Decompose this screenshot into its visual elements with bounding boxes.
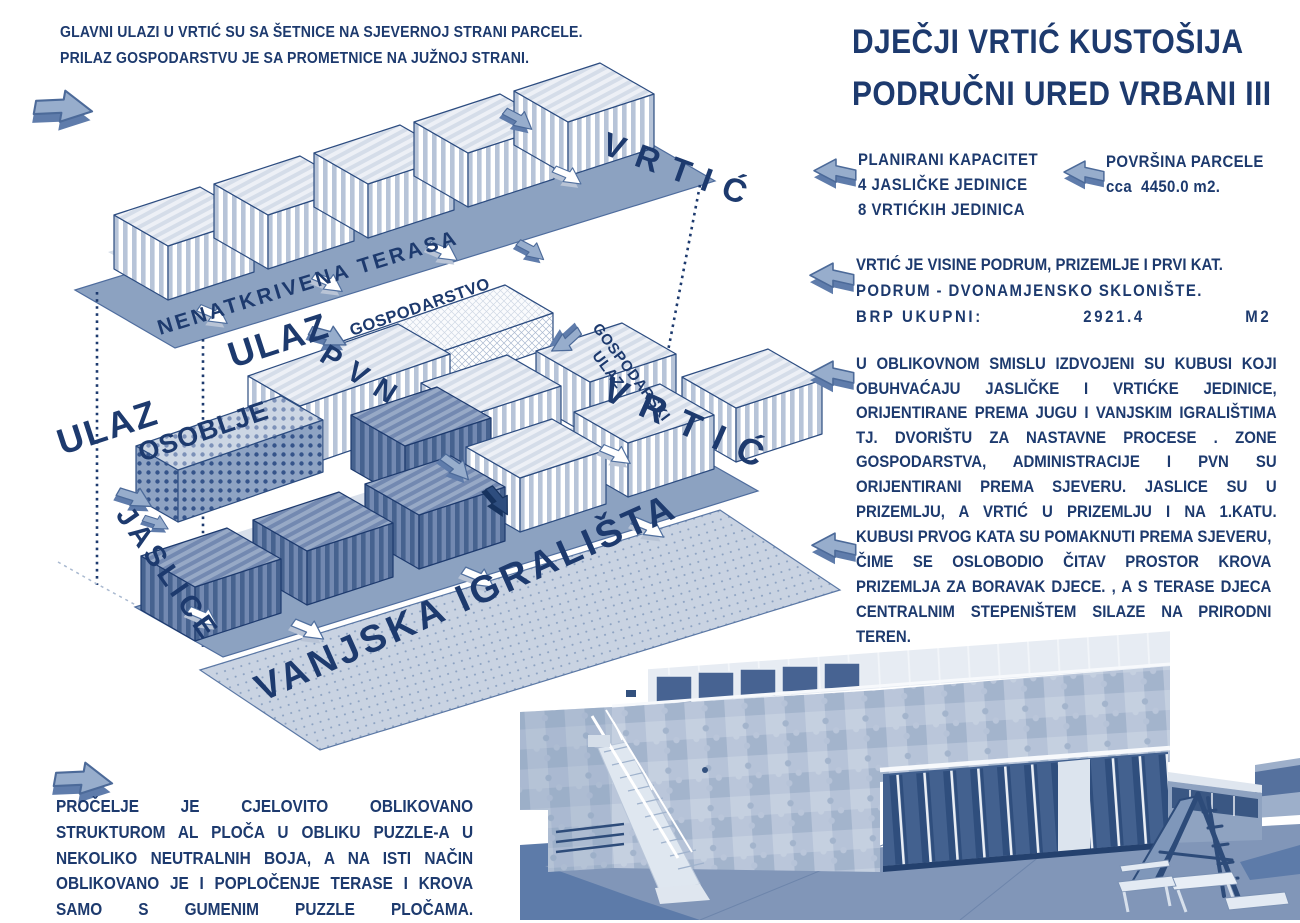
note-line: PRILAZ GOSPODARSTVU JE SA PROMETNICE NA …: [60, 46, 623, 72]
note-arrow-icon: [812, 533, 856, 564]
note-line: GLAVNI ULAZI U VRTIĆ SU SA ŠETNICE NA SJ…: [60, 20, 623, 46]
floors-line: VRTIĆ JE VISINE PODRUM, PRIZEMLJE I PRVI…: [856, 252, 1271, 278]
wall-sign: [626, 690, 636, 697]
wall-lamp: [702, 767, 708, 773]
note-facade: PROČELJE JE CJELOVITO OBLIKOVANO STRUKTU…: [56, 794, 530, 923]
first-floor-text: KUBUSI PRVOG KATA SU POMAKNUTI PREMA SJE…: [856, 524, 1271, 649]
capacity-line: PLANIRANI KAPACITET: [858, 147, 1087, 172]
title-line-1: DJEČJI VRTIĆ KUSTOŠIJA: [852, 16, 1300, 68]
building-photo: [520, 630, 1300, 920]
title-line-2: PODRUČNI URED VRBANI III: [852, 68, 1300, 120]
glazing-pier: [1058, 759, 1090, 852]
note-arrow-icon: [32, 86, 95, 136]
brp-label: BRP UKUPNI:: [856, 304, 983, 330]
note-arrow-icon: [814, 159, 856, 189]
guide-dashed-line: [58, 562, 145, 610]
note-massing: U OBLIKOVNOM SMISLU IZDVOJENI SU KUBUSI …: [856, 352, 1300, 524]
page-title: DJEČJI VRTIĆ KUSTOŠIJA PODRUČNI URED VRB…: [852, 16, 1300, 120]
massing-text: U OBLIKOVNOM SMISLU IZDVOJENI SU KUBUSI …: [856, 352, 1277, 524]
area-label: POVRŠINA PARCELE: [1106, 149, 1300, 174]
note-parcel-area: POVRŠINA PARCELE cca 4450.0 m2.: [1106, 149, 1300, 199]
note-capacity: PLANIRANI KAPACITET 4 JASLIČKE JEDINICE …: [858, 147, 1118, 222]
brp-unit: M2: [1245, 304, 1271, 330]
facade-text: PROČELJE JE CJELOVITO OBLIKOVANO STRUKTU…: [56, 794, 473, 923]
note-arrow-icon: [810, 263, 854, 294]
presentation-board: { "title": { "line1": "DJEČJI VRTIĆ KUST…: [0, 0, 1300, 920]
note-floors: VRTIĆ JE VISINE PODRUM, PRIZEMLJE I PRVI…: [856, 252, 1300, 330]
brp-value: 2921.4: [1083, 304, 1145, 330]
area-value: cca 4450.0 m2.: [1106, 174, 1300, 199]
note-main-entrances: GLAVNI ULAZI U VRTIĆ SU SA ŠETNICE NA SJ…: [60, 20, 700, 72]
note-first-floor: KUBUSI PRVOG KATA SU POMAKNUTI PREMA SJE…: [856, 524, 1300, 649]
floors-brp-line: BRP UKUPNI: 2921.4 M2: [856, 304, 1271, 330]
capacity-line: 4 JASLIČKE JEDINICE: [858, 172, 1087, 197]
capacity-line: 8 VRTIĆKIH JEDINICA: [858, 197, 1087, 222]
floors-line: PODRUM - DVONAMJENSKO SKLONIŠTE.: [856, 278, 1271, 304]
